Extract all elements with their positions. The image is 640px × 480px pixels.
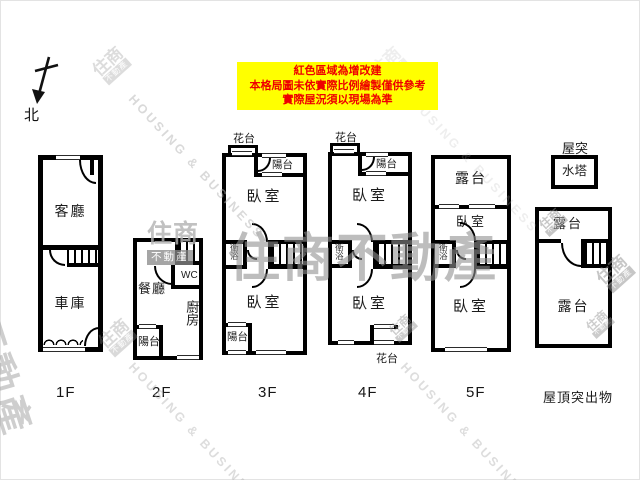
watermark-housing-text: HOUSING & BUSINESS	[398, 360, 539, 480]
window	[338, 340, 354, 345]
room-label-bed-top: 臥室	[332, 188, 408, 205]
wall	[248, 323, 252, 351]
door-arc	[456, 250, 466, 260]
window	[56, 155, 80, 160]
notice-line-3: 實際屋況須以現場為準	[237, 93, 438, 108]
north-arrow-icon	[14, 52, 64, 110]
north-label: 北	[24, 104, 39, 125]
window	[334, 149, 354, 154]
floor-label-3f: 3F	[258, 384, 278, 401]
window	[445, 347, 487, 352]
notice-line-2: 本格局圖未依實際比例繪製僅供參考	[237, 79, 438, 94]
plan-roof: 露台 露台	[535, 207, 612, 348]
window	[256, 350, 286, 355]
window	[262, 172, 282, 177]
wall	[268, 265, 303, 269]
watermark-diamond-top: 住商	[89, 44, 126, 79]
wall	[435, 264, 456, 268]
door-arc	[252, 223, 268, 242]
room-label-bath: 衛浴	[438, 243, 447, 260]
floor-label-5f: 5F	[466, 384, 486, 401]
wall	[373, 265, 408, 269]
wall	[539, 239, 561, 243]
stairs	[175, 242, 199, 265]
room-label-bath: 衛浴	[229, 243, 238, 260]
floor-plan-image: 北 紅色區域為增改建 本格局圖未依實際比例繪製僅供參考 實際屋況須以現場為準 客…	[0, 0, 640, 480]
window	[177, 355, 199, 360]
wall	[581, 264, 608, 268]
plan-4f: 陽台 臥室 衛浴 臥室	[328, 152, 412, 345]
door-arc	[258, 158, 271, 172]
room-label-balcony: 陽台	[138, 336, 160, 348]
room-label-water-tank: 水塔	[562, 165, 587, 179]
window	[139, 324, 156, 329]
plan-1f: 客廳 車庫	[38, 155, 103, 352]
door-arc	[49, 250, 65, 266]
wall	[243, 240, 247, 268]
door-arc	[252, 269, 268, 288]
water-tank-box: 水塔	[551, 155, 598, 189]
door-arc	[352, 250, 362, 260]
door-arc	[561, 243, 581, 267]
door-arc	[247, 250, 257, 260]
room-label-living: 客廳	[43, 204, 98, 219]
plan-3f: 陽台 臥室 衛浴 臥室 陽台	[222, 153, 307, 355]
door-arc	[84, 327, 99, 346]
room-label-balcony-top: 陽台	[272, 160, 293, 172]
room-label-terrace: 露台	[435, 171, 507, 186]
room-label-garage: 車庫	[43, 296, 98, 311]
door-arc	[460, 269, 476, 288]
window	[366, 171, 386, 176]
window	[232, 151, 252, 156]
window	[262, 153, 286, 158]
floor-label-2f: 2F	[152, 384, 172, 401]
door-arc	[357, 269, 373, 288]
watermark-diamond-logo: 住商 不動產	[89, 44, 132, 87]
notice-line-1: 紅色區域為增改建	[237, 64, 438, 79]
floor-label-1f: 1F	[56, 384, 76, 401]
room-label-bed-top: 臥室	[226, 189, 303, 206]
wall	[226, 265, 247, 269]
notice-box: 紅色區域為增改建 本格局圖未依實際比例繪製僅供參考 實際屋況須以現場為準	[237, 62, 438, 110]
window	[374, 340, 394, 345]
room-label-bed-bottom: 臥室	[226, 295, 303, 312]
garage-door-opening	[43, 347, 85, 352]
watermark-diamond-bottom: 不動產	[102, 58, 131, 86]
room-label-bath: 衛浴	[334, 243, 343, 260]
room-label-flower-top: 花台	[233, 130, 255, 146]
window	[366, 152, 388, 157]
door-arc	[357, 223, 373, 242]
room-label-dining: 餐廳	[138, 282, 166, 296]
room-label-balcony-bottom: 陽台	[227, 332, 248, 344]
wall	[171, 285, 199, 289]
floor-label-roof: 屋頂突出物	[543, 387, 613, 406]
room-label-terrace-top: 露台	[553, 217, 583, 231]
door-arc	[79, 160, 96, 184]
room-label-wc: WC	[181, 270, 198, 281]
garage-spring	[43, 336, 83, 345]
watermark-housing-text: HOUSING & BUSINESS	[126, 360, 267, 480]
room-label-flower-bottom: 花台	[376, 350, 398, 366]
window	[439, 204, 459, 209]
room-label-bed-bottom: 臥室	[332, 296, 408, 313]
room-label-kitchen: 廚房	[184, 300, 198, 326]
window	[374, 324, 394, 329]
floor-label-4f: 4F	[358, 384, 378, 401]
plan-2f: WC 餐廳 廚房 陽台	[133, 238, 203, 360]
plan-5f: 露台 臥室 衛浴 臥室	[431, 155, 511, 352]
wall	[474, 265, 507, 269]
window	[469, 204, 495, 209]
stairs	[67, 245, 98, 267]
window	[228, 350, 246, 355]
wall	[332, 264, 352, 268]
room-label-terrace-bottom: 露台	[539, 299, 608, 314]
door-arc	[362, 157, 375, 171]
window	[228, 322, 246, 327]
room-label-balcony-top: 陽台	[376, 159, 397, 171]
room-label-bed-bottom: 臥室	[435, 299, 507, 316]
